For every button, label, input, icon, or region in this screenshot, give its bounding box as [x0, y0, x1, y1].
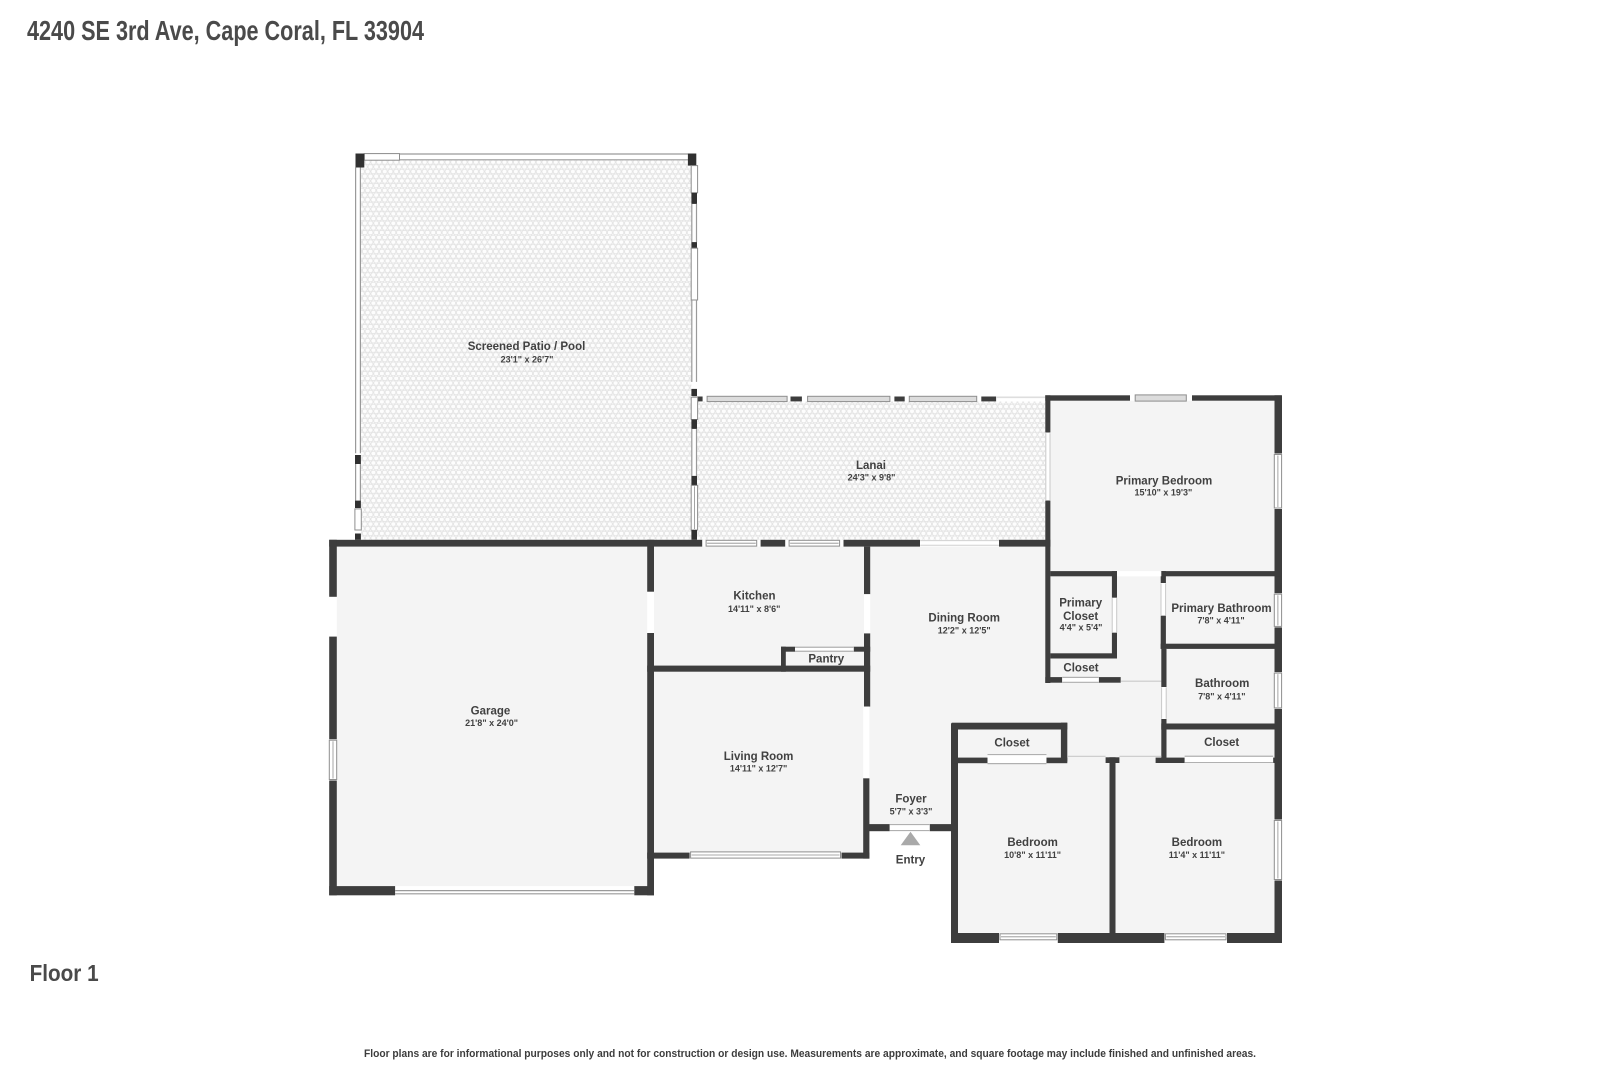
svg-text:24'3" x 9'8": 24'3" x 9'8": [848, 473, 896, 483]
svg-text:Primary Bedroom: Primary Bedroom: [1116, 475, 1213, 487]
svg-text:Bedroom: Bedroom: [1007, 837, 1057, 849]
svg-text:15'10" x 19'3": 15'10" x 19'3": [1134, 488, 1192, 498]
svg-text:Floor plans are for informatio: Floor plans are for informational purpos…: [364, 1048, 1256, 1060]
svg-text:14'11" x 8'6": 14'11" x 8'6": [728, 604, 780, 614]
svg-text:Primary: Primary: [1059, 598, 1102, 610]
svg-text:Kitchen: Kitchen: [733, 591, 775, 603]
svg-text:Primary Bathroom: Primary Bathroom: [1171, 603, 1271, 615]
svg-text:23'1" x 26'7": 23'1" x 26'7": [501, 355, 554, 365]
svg-text:10'8" x 11'11": 10'8" x 11'11": [1004, 850, 1061, 860]
svg-text:Foyer: Foyer: [895, 794, 927, 806]
svg-text:Closet: Closet: [1063, 663, 1098, 675]
svg-text:Dining Room: Dining Room: [928, 613, 1000, 625]
svg-text:Screened Patio / Pool: Screened Patio / Pool: [468, 341, 586, 353]
svg-text:Lanai: Lanai: [856, 460, 886, 472]
svg-text:Floor 1: Floor 1: [30, 960, 99, 986]
svg-text:Bathroom: Bathroom: [1195, 678, 1249, 690]
svg-text:11'4" x 11'11": 11'4" x 11'11": [1169, 850, 1225, 860]
svg-text:Closet: Closet: [1204, 737, 1239, 749]
svg-text:7'8" x 4'11": 7'8" x 4'11": [1197, 616, 1244, 626]
svg-text:Closet: Closet: [1063, 611, 1098, 623]
svg-text:4'4" x 5'4": 4'4" x 5'4": [1060, 623, 1103, 633]
svg-text:Bedroom: Bedroom: [1172, 837, 1222, 849]
svg-text:21'8" x 24'0": 21'8" x 24'0": [465, 718, 518, 728]
svg-text:4240 SE 3rd Ave, Cape Coral, F: 4240 SE 3rd Ave, Cape Coral, FL 33904: [27, 15, 424, 46]
svg-text:Entry: Entry: [896, 855, 926, 867]
svg-text:Garage: Garage: [471, 706, 511, 718]
svg-text:5'7" x 3'3": 5'7" x 3'3": [890, 807, 933, 817]
svg-text:Closet: Closet: [994, 738, 1029, 750]
svg-text:Pantry: Pantry: [808, 654, 844, 666]
svg-text:7'8" x 4'11": 7'8" x 4'11": [1198, 692, 1245, 702]
svg-text:Living Room: Living Room: [724, 751, 794, 763]
svg-text:14'11" x 12'7": 14'11" x 12'7": [730, 764, 787, 774]
svg-text:12'2" x 12'5": 12'2" x 12'5": [938, 626, 991, 636]
